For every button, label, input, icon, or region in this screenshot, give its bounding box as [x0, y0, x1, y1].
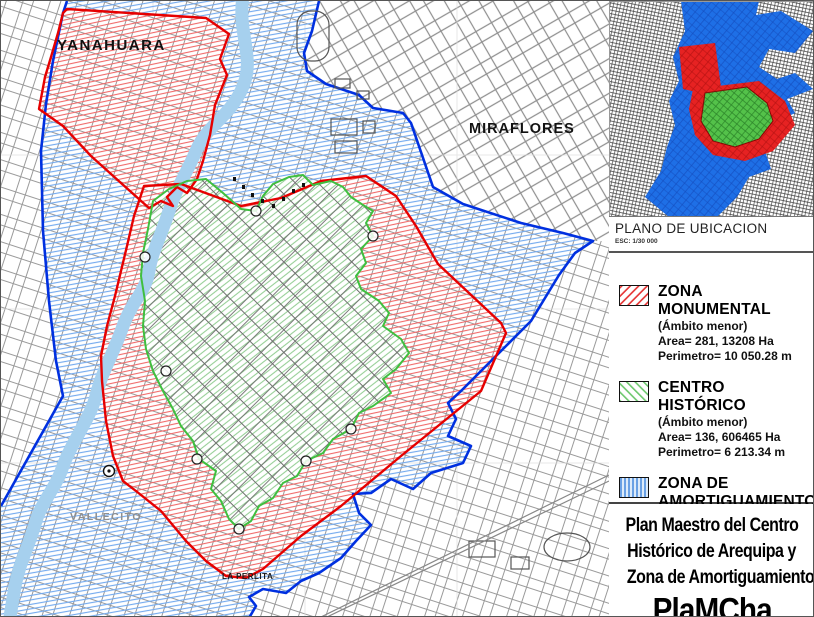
inset-caption-box: PLANO DE UBICACION ESC: 1/30 000 [609, 217, 814, 253]
legend: ZONA MONUMENTAL (Ámbito menor) Area= 281… [609, 253, 814, 504]
legend-area: Area= 136, 606465 Ha [658, 430, 811, 445]
location-inset-map [609, 1, 814, 217]
legend-label: CENTRO HISTÓRICO [658, 379, 811, 415]
legend-label: ZONA MONUMENTAL [658, 283, 811, 319]
inset-map-canvas [609, 1, 814, 217]
main-map: YANAHUARA MIRAFLORES VALLECITO LA PERLIT… [1, 1, 609, 617]
title-line-2: Histórico de Arequipa y [628, 539, 797, 565]
legend-perimeter: Perimetro= 10 050.28 m [658, 349, 811, 364]
legend-swatch-zona-monumental [619, 285, 649, 306]
title-line-1: Plan Maestro del Centro [625, 513, 798, 539]
legend-item-centro-historico: CENTRO HISTÓRICO (Ámbito menor) Area= 13… [619, 379, 811, 460]
inset-caption-title: PLANO DE UBICACION [615, 221, 814, 236]
legend-scope: (Ámbito menor) [658, 319, 811, 334]
main-map-canvas [1, 1, 609, 617]
district-label-yanahuara: YANAHUARA [57, 37, 166, 54]
legend-item-zona-monumental: ZONA MONUMENTAL (Ámbito menor) Area= 281… [619, 283, 811, 364]
title-line-3: Zona de Amortiguamiento [627, 565, 814, 591]
inset-scale: ESC: 1/30 000 [615, 238, 814, 245]
plamcha-plan-sheet: YANAHUARA MIRAFLORES VALLECITO LA PERLIT… [0, 0, 814, 617]
district-label-la-perlita: LA PERLITA [222, 572, 273, 581]
legend-swatch-centro-historico [619, 381, 649, 402]
legend-perimeter: Perimetro= 6 213.34 m [658, 445, 811, 460]
title-block: Plan Maestro del Centro Histórico de Are… [609, 504, 814, 617]
legend-scope: (Ámbito menor) [658, 415, 811, 430]
district-label-miraflores: MIRAFLORES [469, 121, 575, 137]
inset-monumental-north-blob [679, 43, 721, 93]
district-label-vallecito: VALLECITO [70, 511, 142, 523]
legend-swatch-zona-amortiguamiento [619, 477, 649, 498]
monument-point-symbol [104, 466, 115, 477]
legend-area: Area= 281, 13208 Ha [658, 334, 811, 349]
title-acronym: PlaMCha [652, 592, 771, 617]
side-panel: PLANO DE UBICACION ESC: 1/30 000 ZONA MO… [609, 1, 814, 617]
